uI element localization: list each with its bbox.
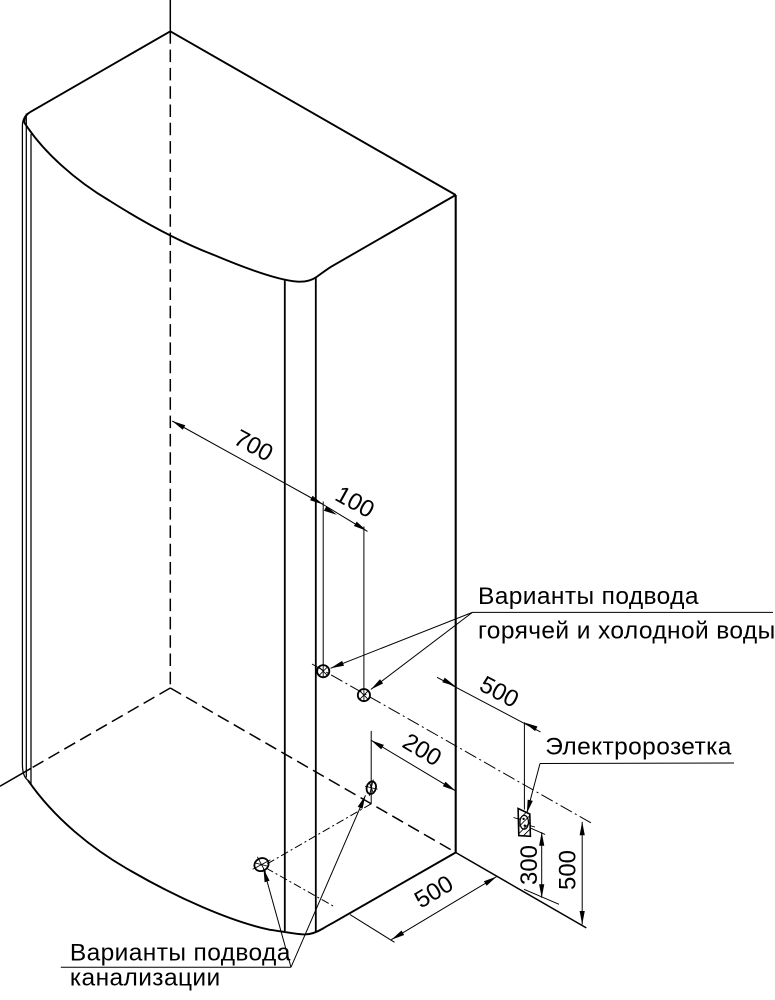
svg-text:горячей и холодной воды: горячей и холодной воды bbox=[478, 618, 775, 645]
svg-text:500: 500 bbox=[555, 850, 582, 890]
svg-text:Варианты подвода: Варианты подвода bbox=[70, 940, 291, 967]
svg-text:Электророзетка: Электророзетка bbox=[545, 734, 732, 761]
svg-text:Варианты подвода: Варианты подвода bbox=[478, 583, 699, 610]
svg-text:300: 300 bbox=[516, 845, 543, 885]
svg-text:канализации: канализации bbox=[70, 965, 221, 992]
